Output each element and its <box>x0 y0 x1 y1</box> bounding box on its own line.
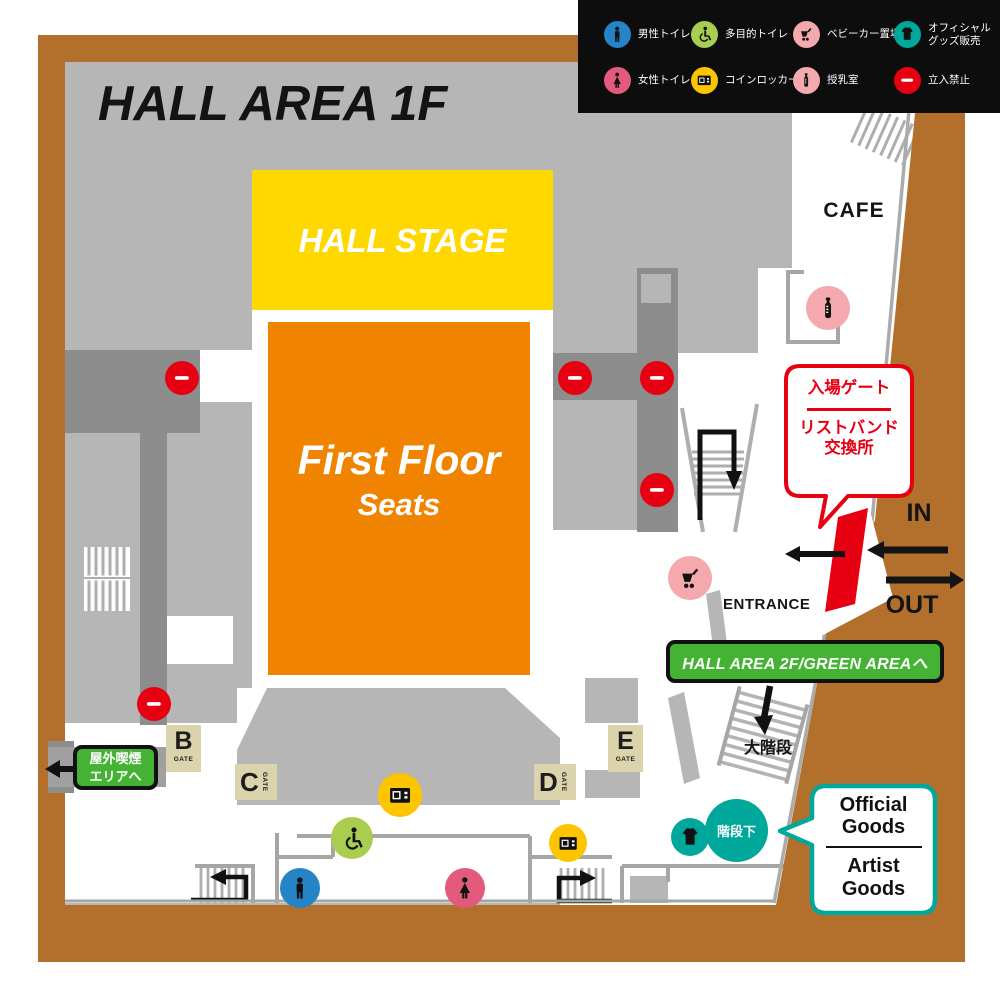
gate-e: E GATE <box>608 725 643 772</box>
womens-toilet-icon <box>604 67 631 94</box>
official-goods-icon <box>671 818 709 856</box>
first-floor-seats-label: First Floor Seats <box>268 438 530 526</box>
gate-b: B GATE <box>166 725 201 772</box>
no-entry-icon <box>640 361 674 395</box>
no-entry-icon <box>558 361 592 395</box>
cafe-label: CAFE <box>808 199 900 223</box>
official-goods-icon <box>894 21 921 48</box>
gate-c: C GATE <box>235 764 277 800</box>
no-entry-icon <box>165 361 199 395</box>
grand-staircase-label: 大階段 <box>730 734 806 758</box>
stairs-left <box>84 547 130 611</box>
stairs-bottom-left <box>191 868 252 903</box>
coin-locker-icon <box>691 67 718 94</box>
multipurpose-toilet-icon <box>331 817 373 859</box>
coin-locker-icon <box>378 773 422 817</box>
no-entry-icon <box>137 687 171 721</box>
outdoor-smoking-badge: 屋外喫煙 エリアへ <box>73 745 158 790</box>
divider <box>826 846 922 849</box>
entrance-label: ENTRANCE <box>723 596 819 613</box>
womens-toilet-icon <box>445 868 485 908</box>
under-stairs-goods-spot: 階段下 <box>705 799 768 862</box>
gate-d: D GATE <box>534 764 576 800</box>
legend: 男性トイレ 多目的トイレ ベビーカー置場 オフィシャル グッズ販売 女性トイレ … <box>578 0 1000 113</box>
coin-locker-icon <box>549 824 587 862</box>
to-2f-green-area-badge: HALL AREA 2F/GREEN AREAへ <box>666 640 944 683</box>
page-title: HALL AREA 1F <box>98 76 447 132</box>
goods-callout: Official Goods Artist Goods <box>812 786 935 900</box>
out-label: OUT <box>874 591 950 620</box>
no-entry-icon <box>894 67 921 94</box>
multipurpose-toilet-icon <box>691 21 718 48</box>
mens-toilet-icon <box>604 21 631 48</box>
hall-stage-label: HALL STAGE <box>252 222 553 260</box>
stroller-area-icon <box>793 21 820 48</box>
nursing-room-icon <box>793 67 820 94</box>
in-label: IN <box>894 499 944 528</box>
venue-floor-map: HALL AREA 1F HALL STAGE First Floor Seat… <box>0 0 1000 1000</box>
stroller-area-icon <box>668 556 712 600</box>
nursing-room-icon <box>806 286 850 330</box>
mens-toilet-icon <box>280 868 320 908</box>
no-entry-icon <box>640 473 674 507</box>
stairs-bottom-middle <box>556 868 612 903</box>
divider <box>807 408 891 411</box>
entry-gate-callout: 入場ゲート リストバンド 交換所 <box>786 366 912 458</box>
